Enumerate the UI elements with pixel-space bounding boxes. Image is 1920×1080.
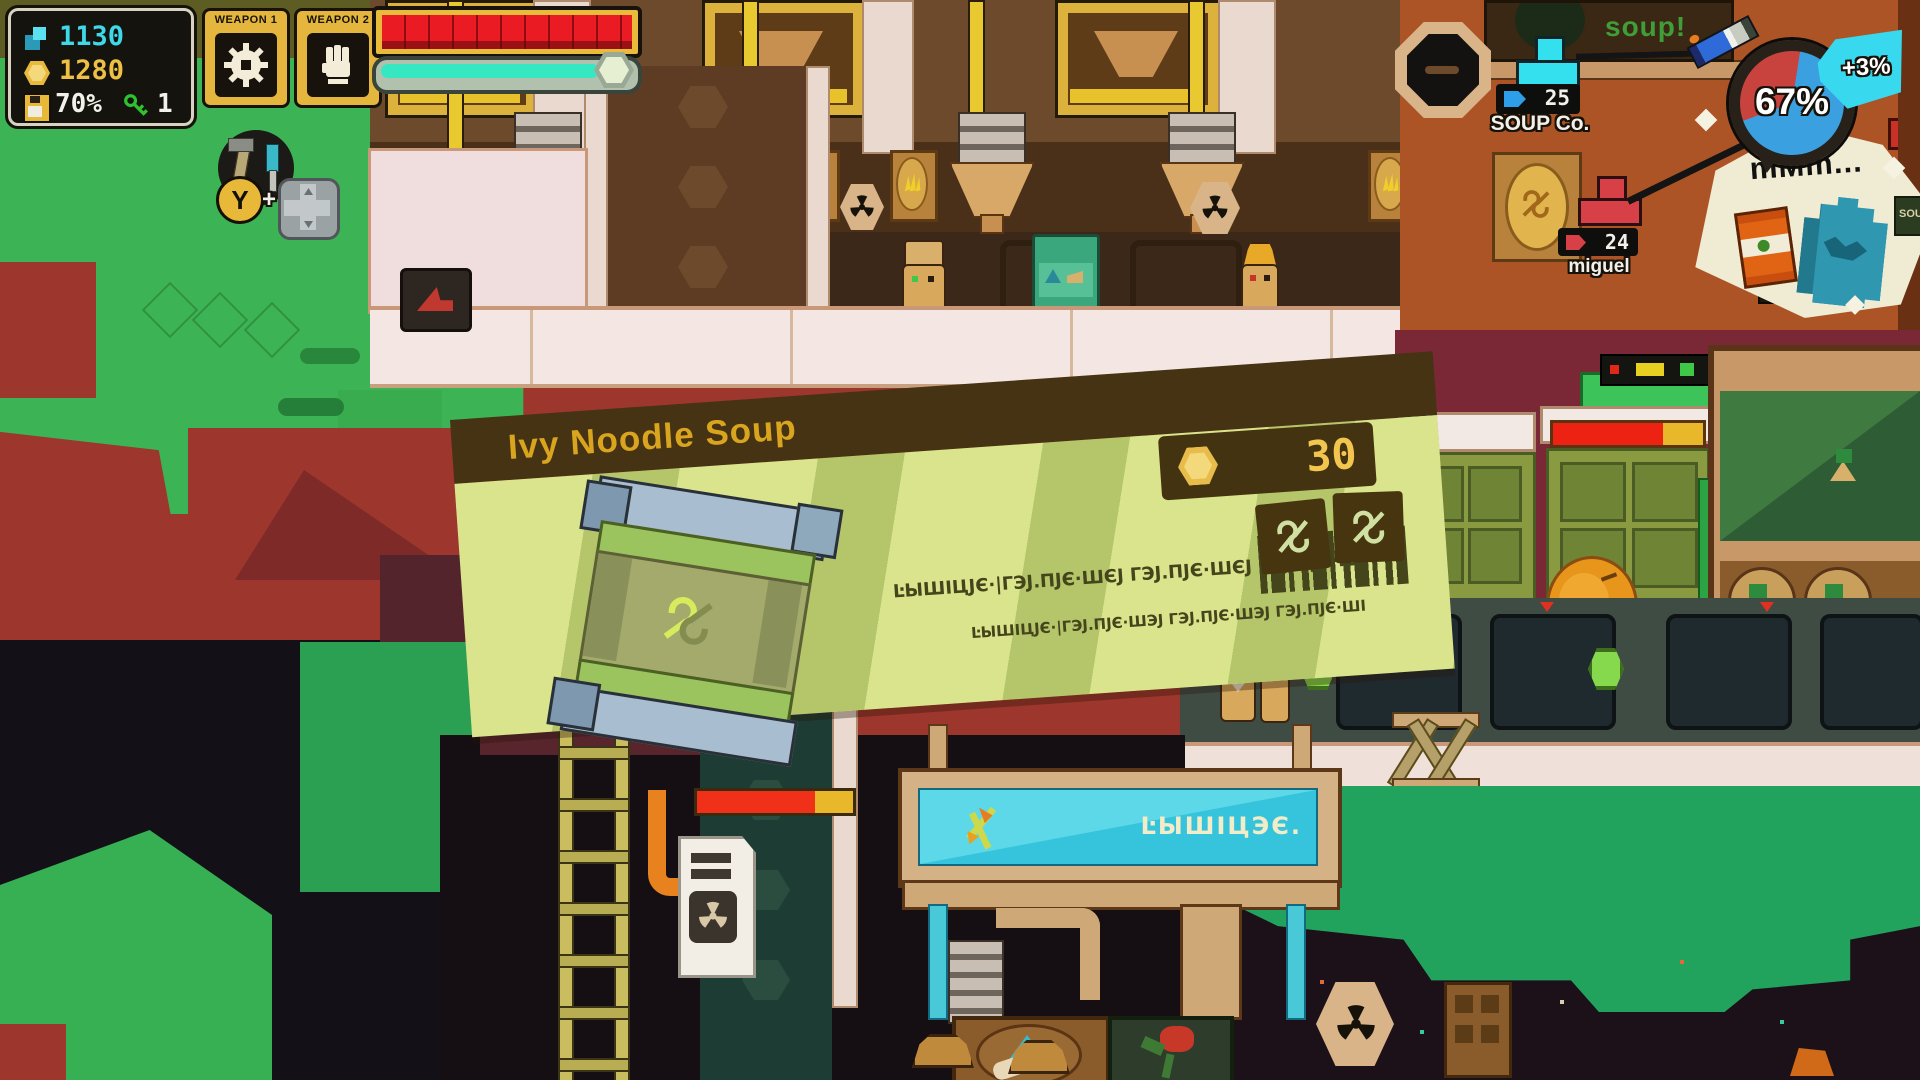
coin-icon	[1177, 446, 1220, 487]
miguel-name: miguel	[1556, 256, 1642, 278]
tag-arrow-icon	[1566, 235, 1586, 250]
spring-stack	[948, 940, 1004, 1024]
delta-text: +3%	[1841, 52, 1891, 83]
cabinet-door	[1820, 614, 1920, 730]
red-bit-corner	[0, 1024, 66, 1080]
rose-picture	[1108, 1016, 1234, 1080]
weapon-slot-label: WEAPON 2	[297, 14, 379, 26]
storage-percent: 70%	[55, 89, 102, 119]
stats-panel: 1130 1280 70% 1	[8, 8, 194, 126]
y-button-label: Y	[231, 185, 248, 215]
grass-shadow	[278, 398, 344, 416]
tag-arrow-icon	[1504, 91, 1526, 107]
table-leg	[1286, 904, 1306, 1020]
dark-crate	[400, 268, 472, 332]
game-viewport: soup!	[0, 0, 1920, 1080]
soupco-name: SOUP Co.	[1476, 112, 1604, 136]
rock-speckle	[1560, 1000, 1564, 1004]
pillar	[862, 0, 914, 154]
right-edge-sign-text: SOU	[1899, 208, 1920, 220]
coin-icon	[24, 61, 50, 85]
screwdriver-icon	[266, 144, 279, 172]
crystal-icon	[25, 27, 49, 51]
porthole	[1395, 22, 1491, 118]
gear-icon	[215, 33, 277, 97]
truss-bridge	[1392, 712, 1476, 792]
conveyor-sign-text: ĿЫШІЦЭЄ.	[1141, 812, 1302, 840]
stamina-cap-icon	[594, 52, 634, 88]
stamina-bar-fill	[381, 64, 599, 78]
coin-count: 1280	[59, 55, 124, 86]
conveyor-sign: ĿЫШІЦЭЄ.	[898, 768, 1342, 888]
health-bar-fill	[382, 15, 632, 49]
y-button-icon: Y	[216, 176, 264, 224]
red-ground-patch	[0, 262, 96, 398]
claw-crate	[890, 150, 938, 222]
pipe-elbow	[996, 908, 1100, 1000]
soup-can-icon	[1734, 206, 1798, 289]
badge-soupco: 25	[1496, 84, 1580, 114]
rock-speckle	[1680, 960, 1684, 964]
key-icon	[123, 93, 149, 119]
stamina-bar	[372, 56, 642, 94]
weapon-slot-1[interactable]: WEAPON 1	[202, 8, 290, 108]
soupco-count: 25	[1545, 86, 1570, 110]
machine-progress-bar	[1550, 420, 1706, 448]
interact-prompt[interactable]: Y +	[216, 130, 336, 240]
pillar	[806, 66, 830, 340]
machine-progress-bar	[694, 788, 856, 816]
indicator-panel	[1600, 354, 1716, 386]
tan-crate	[1444, 982, 1512, 1078]
health-bar	[372, 6, 642, 58]
weapon-slot-2[interactable]: WEAPON 2	[294, 8, 382, 108]
hopper-machine	[940, 112, 1040, 232]
ladder	[558, 726, 630, 1080]
soup-sign-text: soup!	[1605, 11, 1686, 43]
grass-shadow	[300, 348, 360, 364]
map-pin-soupco[interactable]	[1516, 36, 1580, 86]
weapon-slot-label: WEAPON 1	[205, 14, 287, 26]
soup-can-art	[554, 474, 831, 764]
cabinet-door	[1666, 614, 1792, 730]
ticket-price: 30	[1304, 429, 1358, 481]
badge-miguel: 24	[1558, 228, 1638, 256]
ingredient-swirl-icon	[1333, 491, 1405, 563]
rock-speckle	[1320, 980, 1324, 984]
plus-separator: +	[262, 186, 276, 214]
ticket-alien-text: ĿЫШІЦЈЄ·|ГЭЈ.ПЈЄ·ШЭЈ ГЭЈ.ПЈЄ·ШЭЈ ГЭЈ.ПЈЄ…	[971, 597, 1367, 643]
crystal-count: 1130	[59, 21, 124, 52]
dpad-icon	[278, 178, 340, 240]
rock-speckle	[1420, 1030, 1424, 1034]
right-edge-sign: SOU	[1894, 196, 1920, 236]
conveyor-shaft-upper	[600, 66, 808, 336]
floppy-icon	[23, 93, 51, 123]
radiation-banner	[678, 836, 756, 978]
key-count: 1	[157, 89, 173, 119]
fist-icon	[307, 33, 369, 97]
table-leg	[928, 904, 948, 1020]
ticket-title: Ivy Noodle Soup	[507, 408, 798, 468]
table-beam	[902, 880, 1340, 910]
ingredient-swirl-icon	[1255, 498, 1332, 575]
rock-speckle	[1780, 1020, 1784, 1024]
miguel-count: 24	[1605, 230, 1629, 254]
pipe	[1180, 904, 1242, 1020]
